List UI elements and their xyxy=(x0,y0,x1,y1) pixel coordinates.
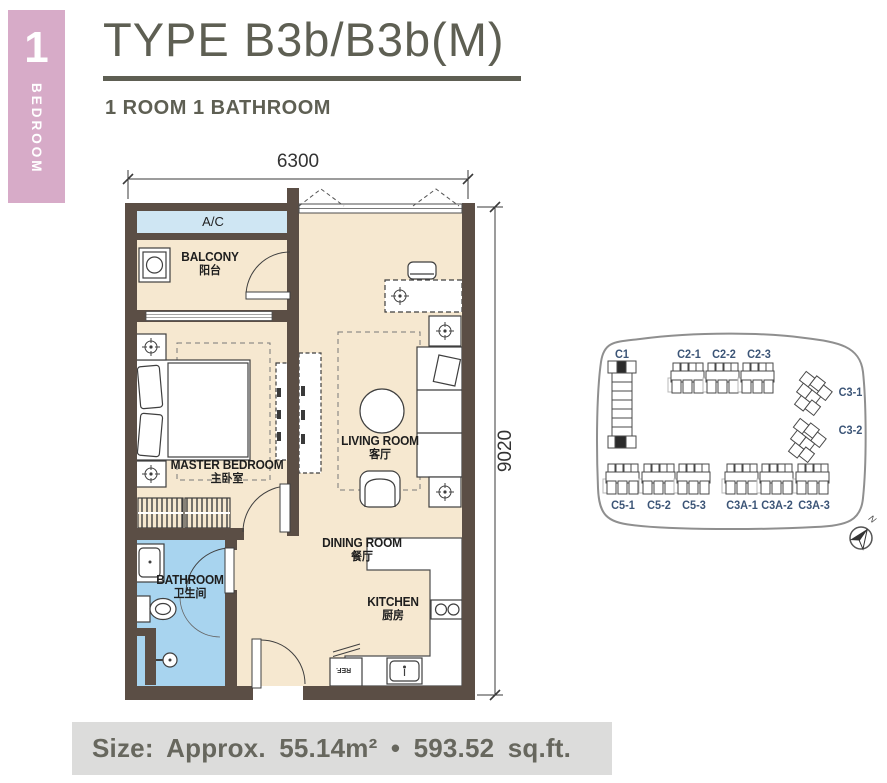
page-subtitle: 1 ROOM 1 BATHROOM xyxy=(105,97,331,120)
casement-swing xyxy=(413,189,459,206)
entrance-door-leaf xyxy=(252,639,261,688)
room-label-living-room: LIVING ROOM 客厅 xyxy=(341,434,419,462)
room-label-bathroom: BATHROOM 卫生间 xyxy=(156,573,224,601)
block-c3a-3 xyxy=(793,464,829,494)
dimension-height: 9020 xyxy=(495,421,517,481)
room-label-bathroom-cn: 卫生间 xyxy=(156,587,224,601)
bedroom-door-leaf xyxy=(280,484,290,532)
armchair xyxy=(360,471,400,507)
room-label-ac: A/C xyxy=(202,214,224,229)
bed xyxy=(135,360,250,460)
keyplan-label-c3a-3: C3A-3 xyxy=(798,500,830,512)
keyplan-label-c5-1: C5-1 xyxy=(611,500,635,512)
floorplan-page: 1 BEDROOM TYPE B3b/B3b(M) 1 ROOM 1 BATHR… xyxy=(0,0,887,783)
room-label-master-bedroom-en: MASTER BEDROOM xyxy=(171,458,284,472)
page-title: TYPE B3b/B3b(M) xyxy=(103,12,521,81)
room-label-master-bedroom: MASTER BEDROOM 主卧室 xyxy=(171,458,284,486)
block-c5-3 xyxy=(674,464,710,494)
block-c2-2 xyxy=(703,363,739,393)
keyplan-label-c3-2: C3-2 xyxy=(839,425,863,437)
kitchen-sink xyxy=(387,658,422,684)
block-c3a-1 xyxy=(722,464,758,494)
north-compass-icon xyxy=(850,524,874,549)
room-label-dining-room-cn: 餐厅 xyxy=(322,550,402,564)
keyplan-drawing xyxy=(597,334,874,550)
size-text: Size: Approx. 55.14m² • 593.52 sq.ft. xyxy=(92,733,571,764)
room-label-master-bedroom-cn: 主卧室 xyxy=(171,472,284,486)
dimension-width: 6300 xyxy=(277,151,319,173)
keyplan-label-c2-2: C2-2 xyxy=(712,349,736,361)
block-c2-1 xyxy=(668,363,704,393)
desk xyxy=(385,280,462,312)
room-label-living-room-cn: 客厅 xyxy=(341,448,419,462)
sofa xyxy=(417,347,462,477)
room-label-balcony-en: BALCONY xyxy=(181,250,238,264)
stove xyxy=(431,600,462,619)
size-bar: Size: Approx. 55.14m² • 593.52 sq.ft. xyxy=(72,722,612,775)
tab-label: BEDROOM xyxy=(29,83,44,175)
bathroom-door-leaf xyxy=(225,548,234,593)
block-c1 xyxy=(608,361,636,448)
room-label-dining-room: DINING ROOM 餐厅 xyxy=(322,536,402,564)
keyplan-label-c5-3: C5-3 xyxy=(682,500,706,512)
block-c2-3 xyxy=(738,363,774,393)
room-label-bathroom-en: BATHROOM xyxy=(156,573,224,587)
block-c3a-2 xyxy=(757,464,793,494)
keyplan-label-c3a-2: C3A-2 xyxy=(761,500,793,512)
keyplan-label-c3a-1: C3A-1 xyxy=(726,500,758,512)
round-table xyxy=(360,389,404,433)
room-label-kitchen-en: KITCHEN xyxy=(367,595,418,609)
tab-number: 1 xyxy=(24,26,48,70)
room-label-balcony: BALCONY 阳台 xyxy=(181,250,238,278)
washing-machine xyxy=(139,248,170,282)
keyplan-label-c2-3: C2-3 xyxy=(747,349,771,361)
block-c5-2 xyxy=(639,464,675,494)
room-label-dining-room-en: DINING ROOM xyxy=(322,536,402,550)
keyplan-label-c5-2: C5-2 xyxy=(647,500,671,512)
bedroom-count-tab: 1 BEDROOM xyxy=(8,10,65,203)
room-label-balcony-cn: 阳台 xyxy=(181,264,238,278)
keyplan-label-c2-1: C2-1 xyxy=(677,349,701,361)
balcony-door-leaf xyxy=(246,292,290,299)
bedroom-window xyxy=(146,312,272,321)
keyplan-label-c1: C1 xyxy=(615,349,629,361)
casement-swing xyxy=(299,189,344,206)
desk-chair xyxy=(408,262,436,279)
refrigerator-label: REF. xyxy=(336,666,351,673)
room-label-kitchen-cn: 厨房 xyxy=(367,609,418,623)
keyplan-label-c3-1: C3-1 xyxy=(839,387,863,399)
room-label-kitchen: KITCHEN 厨房 xyxy=(367,595,418,623)
block-c5-1 xyxy=(603,464,639,494)
room-label-living-room-en: LIVING ROOM xyxy=(341,434,419,448)
